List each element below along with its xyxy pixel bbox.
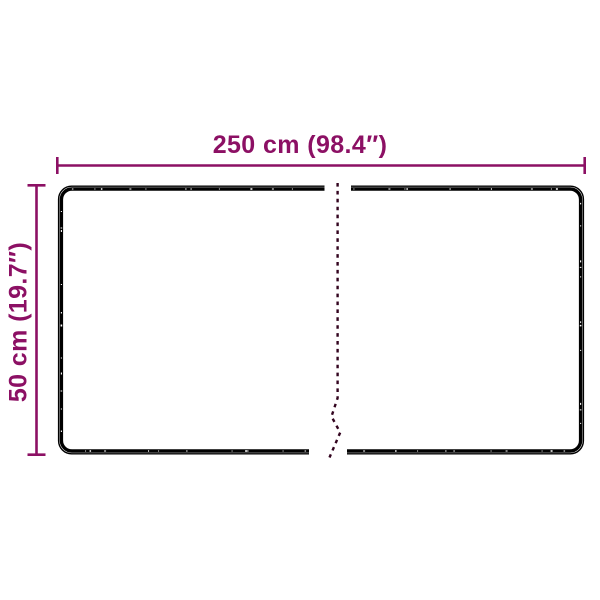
product-dimension-diagram: 250 cm (98.4″) 50 cm (19.7″) <box>0 0 600 600</box>
width-dimension-line <box>57 157 585 174</box>
diagram-drawing <box>0 0 600 600</box>
bottom-border-gap <box>309 446 347 458</box>
height-dimension-line <box>28 185 46 455</box>
tarp-outline <box>59 186 584 454</box>
